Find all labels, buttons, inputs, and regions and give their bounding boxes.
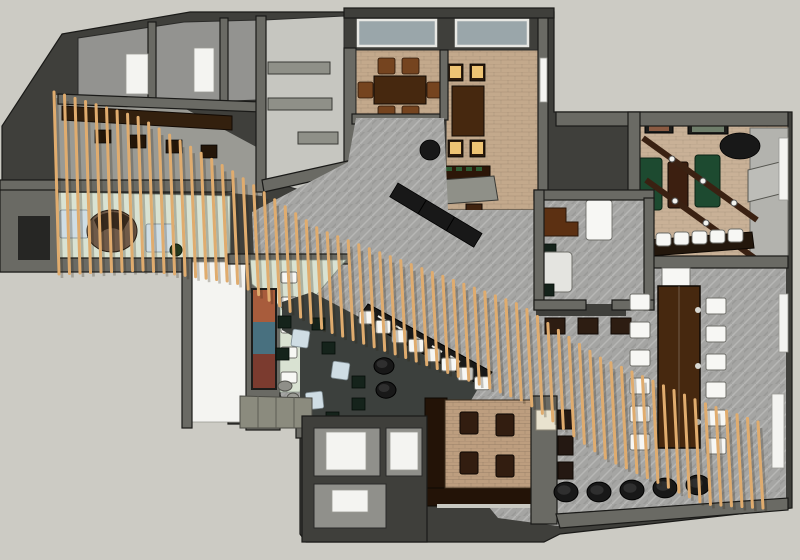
dining-table	[452, 86, 484, 136]
window-opening	[772, 394, 784, 468]
communal-chair	[706, 354, 726, 370]
door-opening	[126, 54, 148, 94]
skylight	[358, 20, 436, 46]
corridor-west-wall	[182, 258, 192, 428]
office-east-wall	[644, 198, 654, 310]
communal-chair	[630, 322, 650, 338]
dining-table	[374, 76, 426, 104]
floor-plan-render	[0, 0, 800, 560]
mural-panel	[253, 322, 275, 354]
kitchen-counter	[268, 98, 332, 110]
skylight	[456, 20, 528, 46]
floor-plan-svg	[0, 0, 800, 560]
drum-pendant-light	[720, 133, 760, 159]
mural-panel	[253, 354, 275, 388]
game-room-north-wall	[556, 112, 788, 126]
floor-pouf-top	[590, 485, 603, 495]
kitchen-counter	[298, 132, 338, 144]
communal-chair	[630, 294, 650, 310]
dining2-east-wall	[538, 12, 548, 210]
floor-pouf-top	[557, 485, 570, 495]
booth-area	[425, 396, 573, 524]
storage-divider-wall	[148, 22, 156, 106]
office-table	[586, 200, 612, 240]
floor-pouf-top	[377, 360, 388, 368]
window-opening	[779, 138, 788, 200]
servery-station	[440, 176, 498, 204]
restroom-extension	[302, 416, 427, 542]
storage-divider-wall	[220, 18, 228, 104]
floor-pouf-top	[379, 384, 390, 392]
kitchen-west-wall	[256, 16, 266, 192]
north-wall-band	[344, 8, 554, 18]
door-opening	[194, 48, 214, 92]
door-light	[390, 432, 418, 470]
reception-counter	[60, 210, 88, 238]
table-candle	[695, 363, 701, 369]
office-south-wall	[534, 300, 586, 310]
table-candle	[695, 307, 701, 313]
communal-chair	[706, 298, 726, 314]
round-table	[420, 140, 440, 160]
entry-door-opening	[18, 216, 50, 260]
floor-pouf-top	[623, 483, 636, 493]
office-west-wall	[534, 190, 544, 310]
communal-chair	[630, 350, 650, 366]
booth-wood-border	[425, 488, 535, 506]
window-opening	[540, 58, 547, 102]
door-light	[332, 490, 368, 512]
reception-counter	[146, 224, 174, 252]
window-opening	[779, 294, 788, 352]
kitchen-counter	[268, 62, 330, 74]
door-light	[326, 432, 366, 470]
dining-divider-wall	[440, 50, 448, 120]
office-north-wall	[534, 190, 654, 200]
communal-chair	[706, 326, 726, 342]
communal-chair	[706, 382, 726, 398]
kitchen	[256, 16, 356, 192]
platform-sill	[437, 504, 533, 508]
